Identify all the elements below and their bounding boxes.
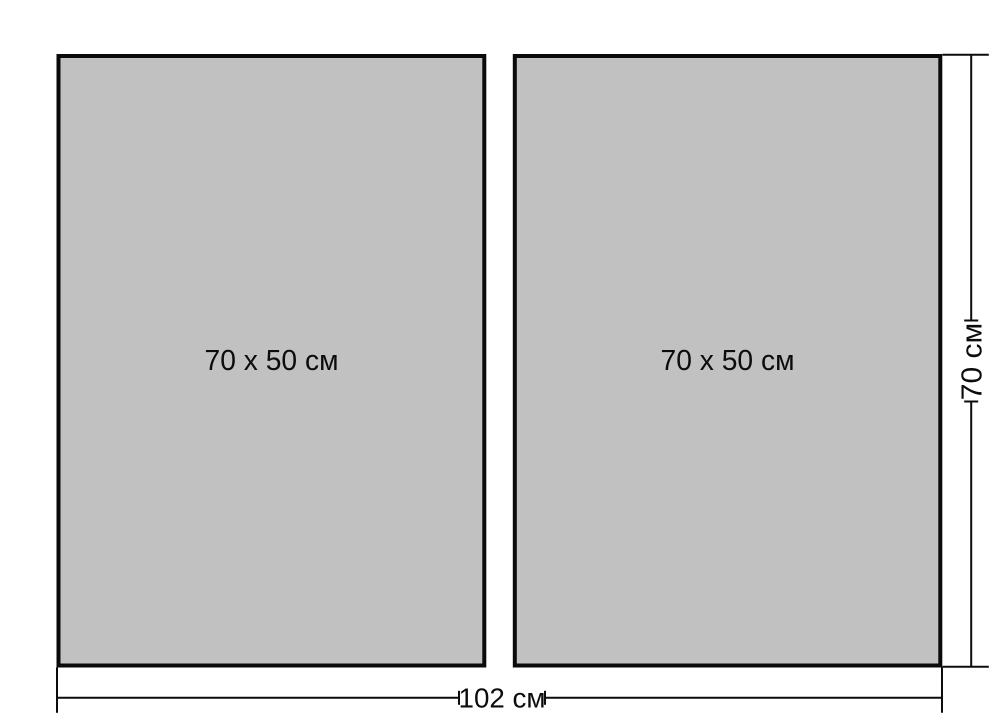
svg-text:102 см: 102 см (459, 683, 546, 714)
svg-text:70 x 50 см: 70 x 50 см (205, 345, 339, 377)
svg-text:70 см: 70 см (957, 323, 989, 401)
svg-text:70 x 50 см: 70 x 50 см (661, 345, 795, 377)
